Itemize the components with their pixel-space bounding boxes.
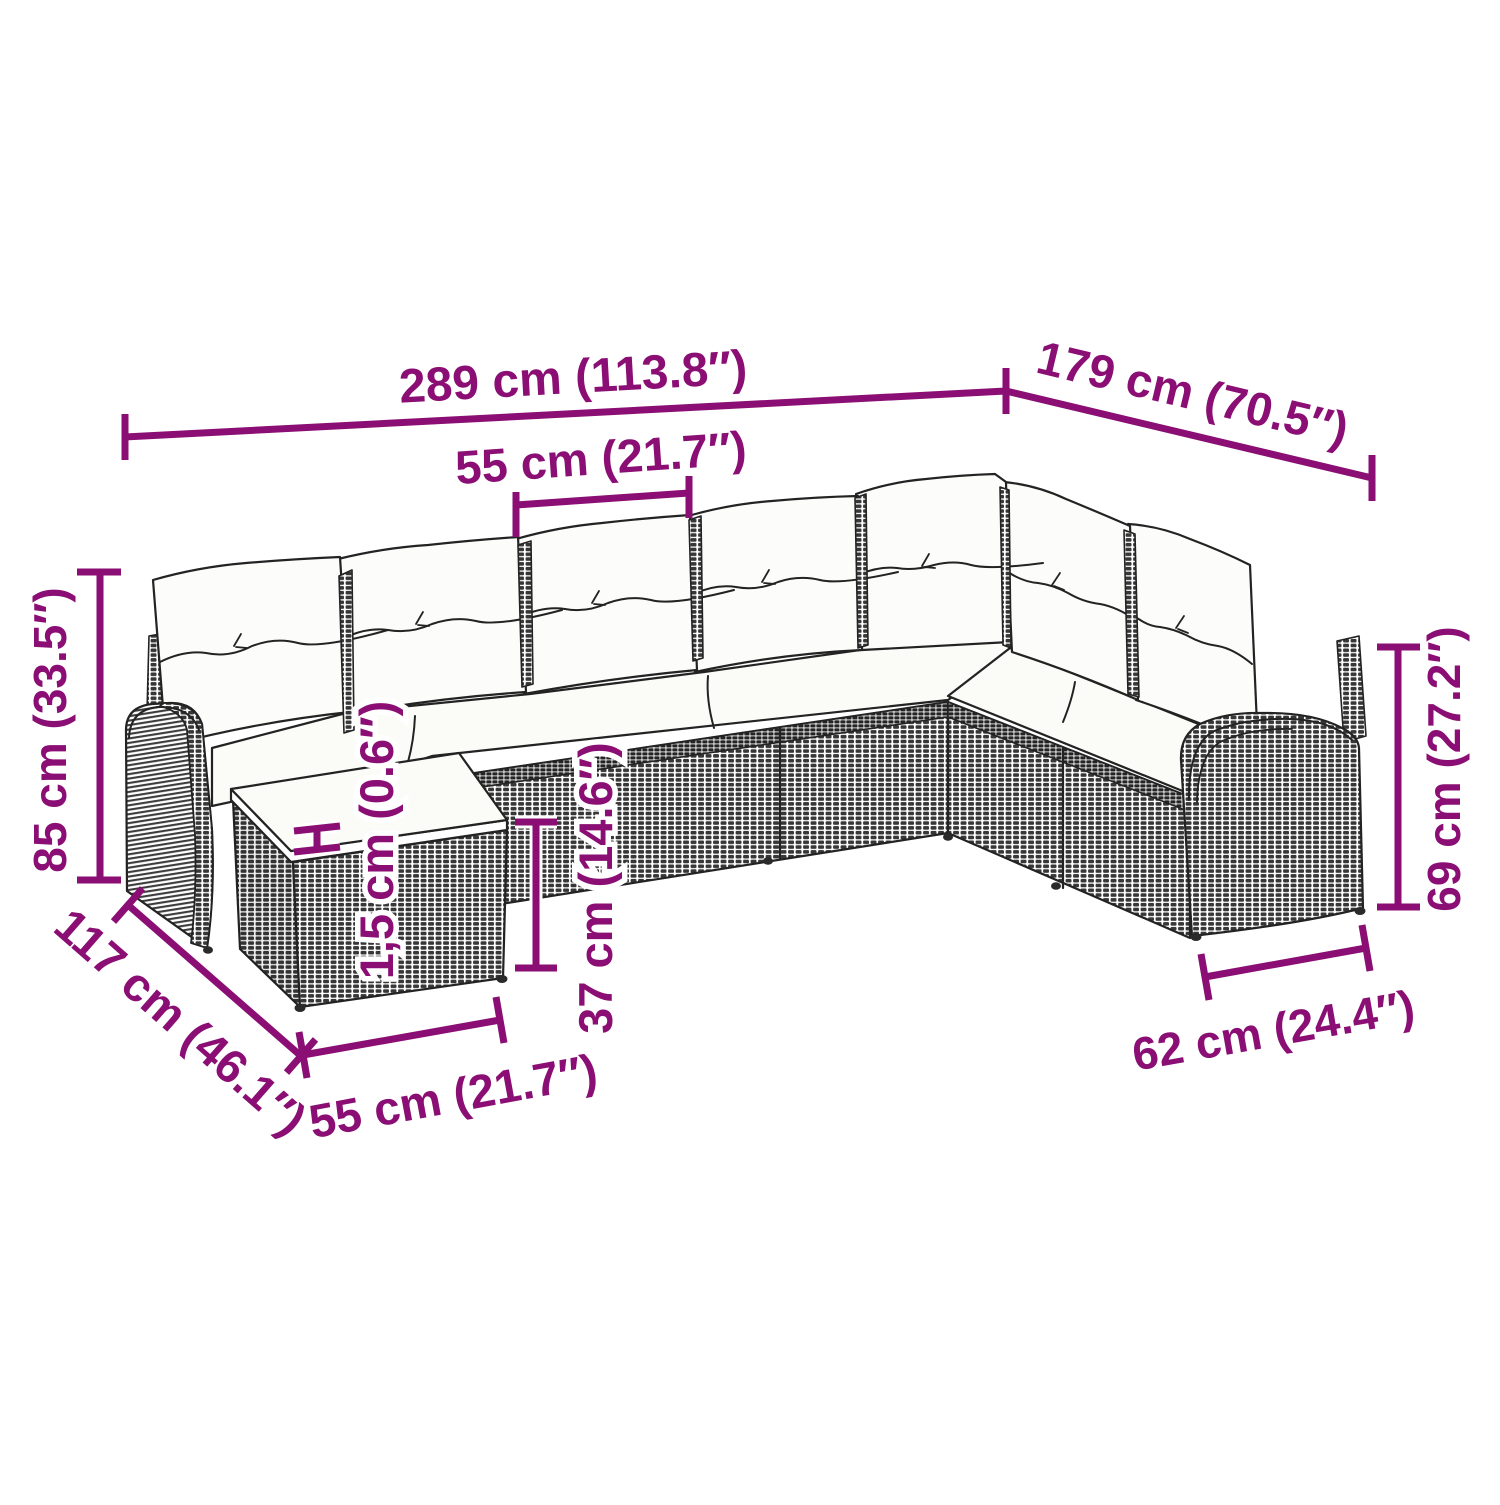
svg-text:1,5 cm (0.6″): 1,5 cm (0.6″) (350, 701, 403, 980)
svg-text:37 cm (14.6″): 37 cm (14.6″) (569, 742, 622, 1034)
svg-text:55 cm (21.7″): 55 cm (21.7″) (305, 1043, 601, 1148)
svg-text:85 cm (33.5″): 85 cm (33.5″) (24, 587, 76, 872)
svg-text:289 cm (113.8″): 289 cm (113.8″) (398, 341, 749, 413)
svg-text:69 cm (27.2″): 69 cm (27.2″) (1418, 626, 1470, 911)
svg-text:55 cm (21.7″): 55 cm (21.7″) (454, 421, 749, 494)
svg-text:62 cm (24.4″): 62 cm (24.4″) (1128, 980, 1418, 1081)
